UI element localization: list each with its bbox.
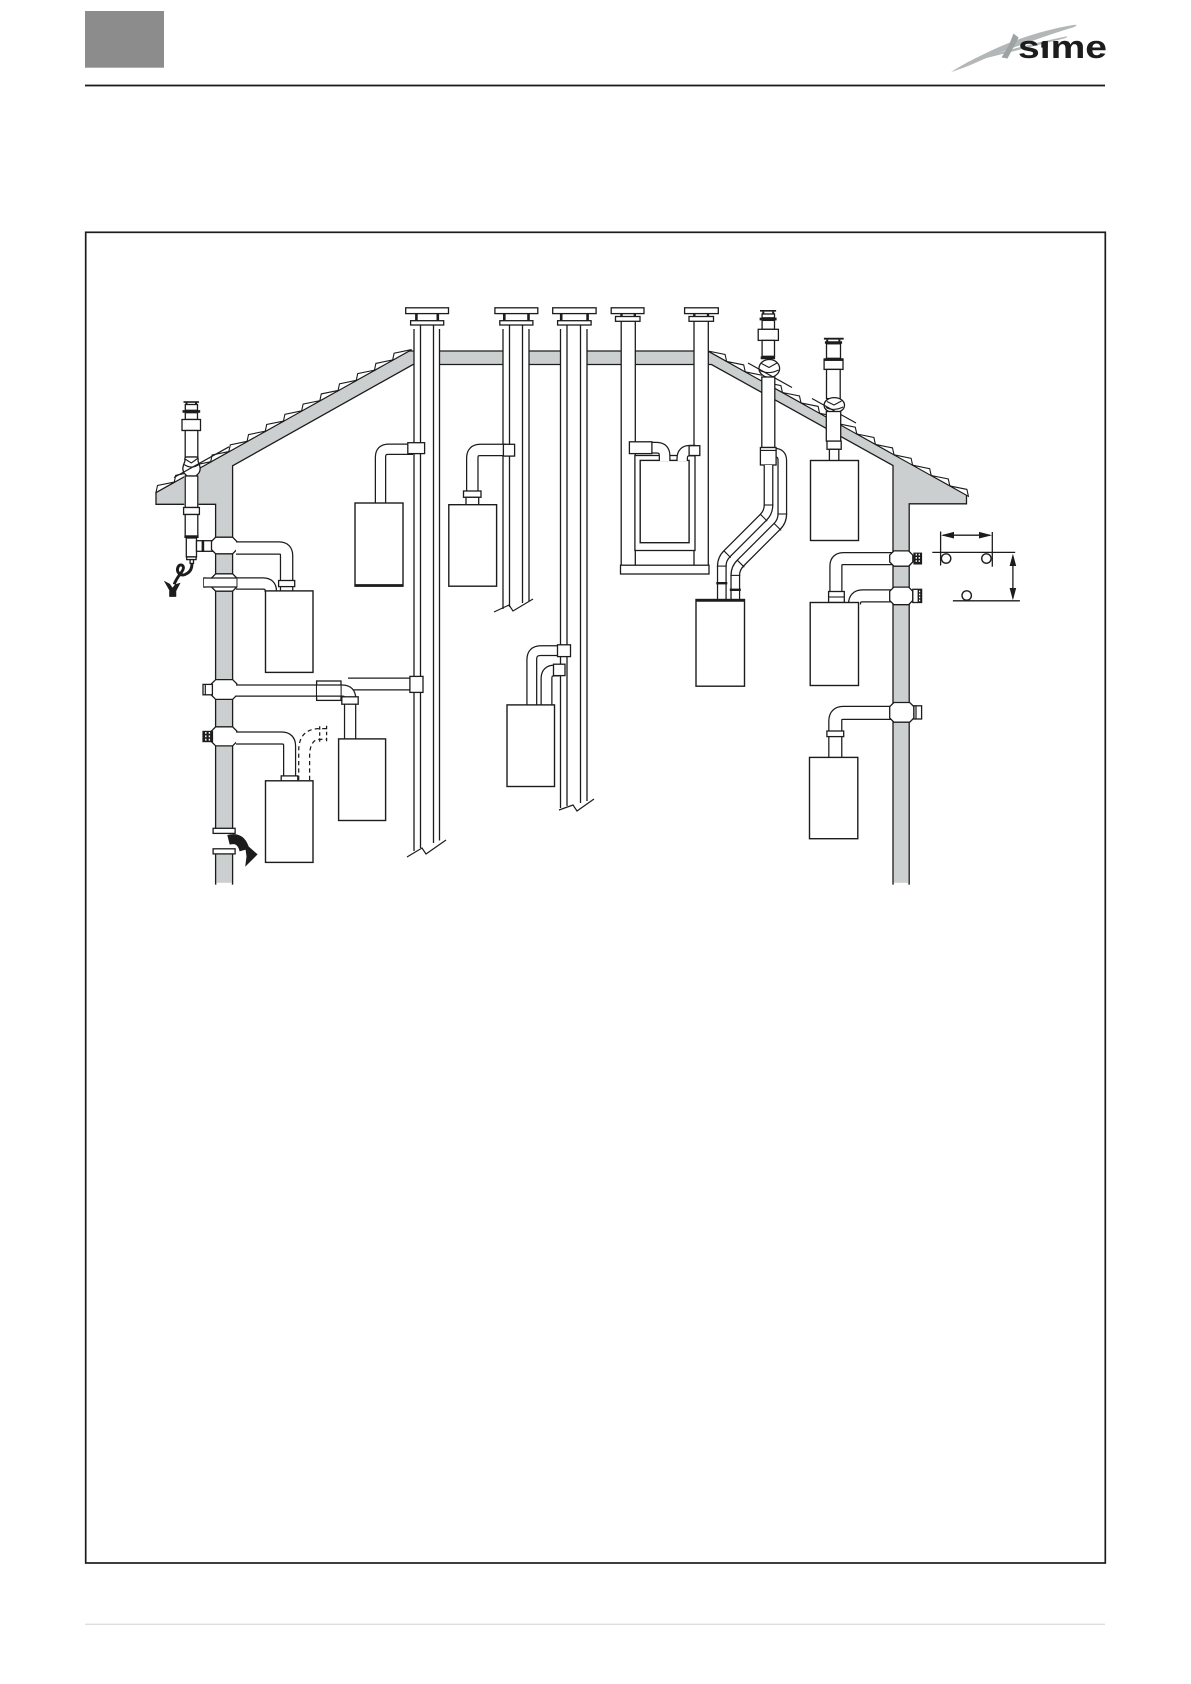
svg-text:sıme: sıme — [1018, 29, 1107, 65]
